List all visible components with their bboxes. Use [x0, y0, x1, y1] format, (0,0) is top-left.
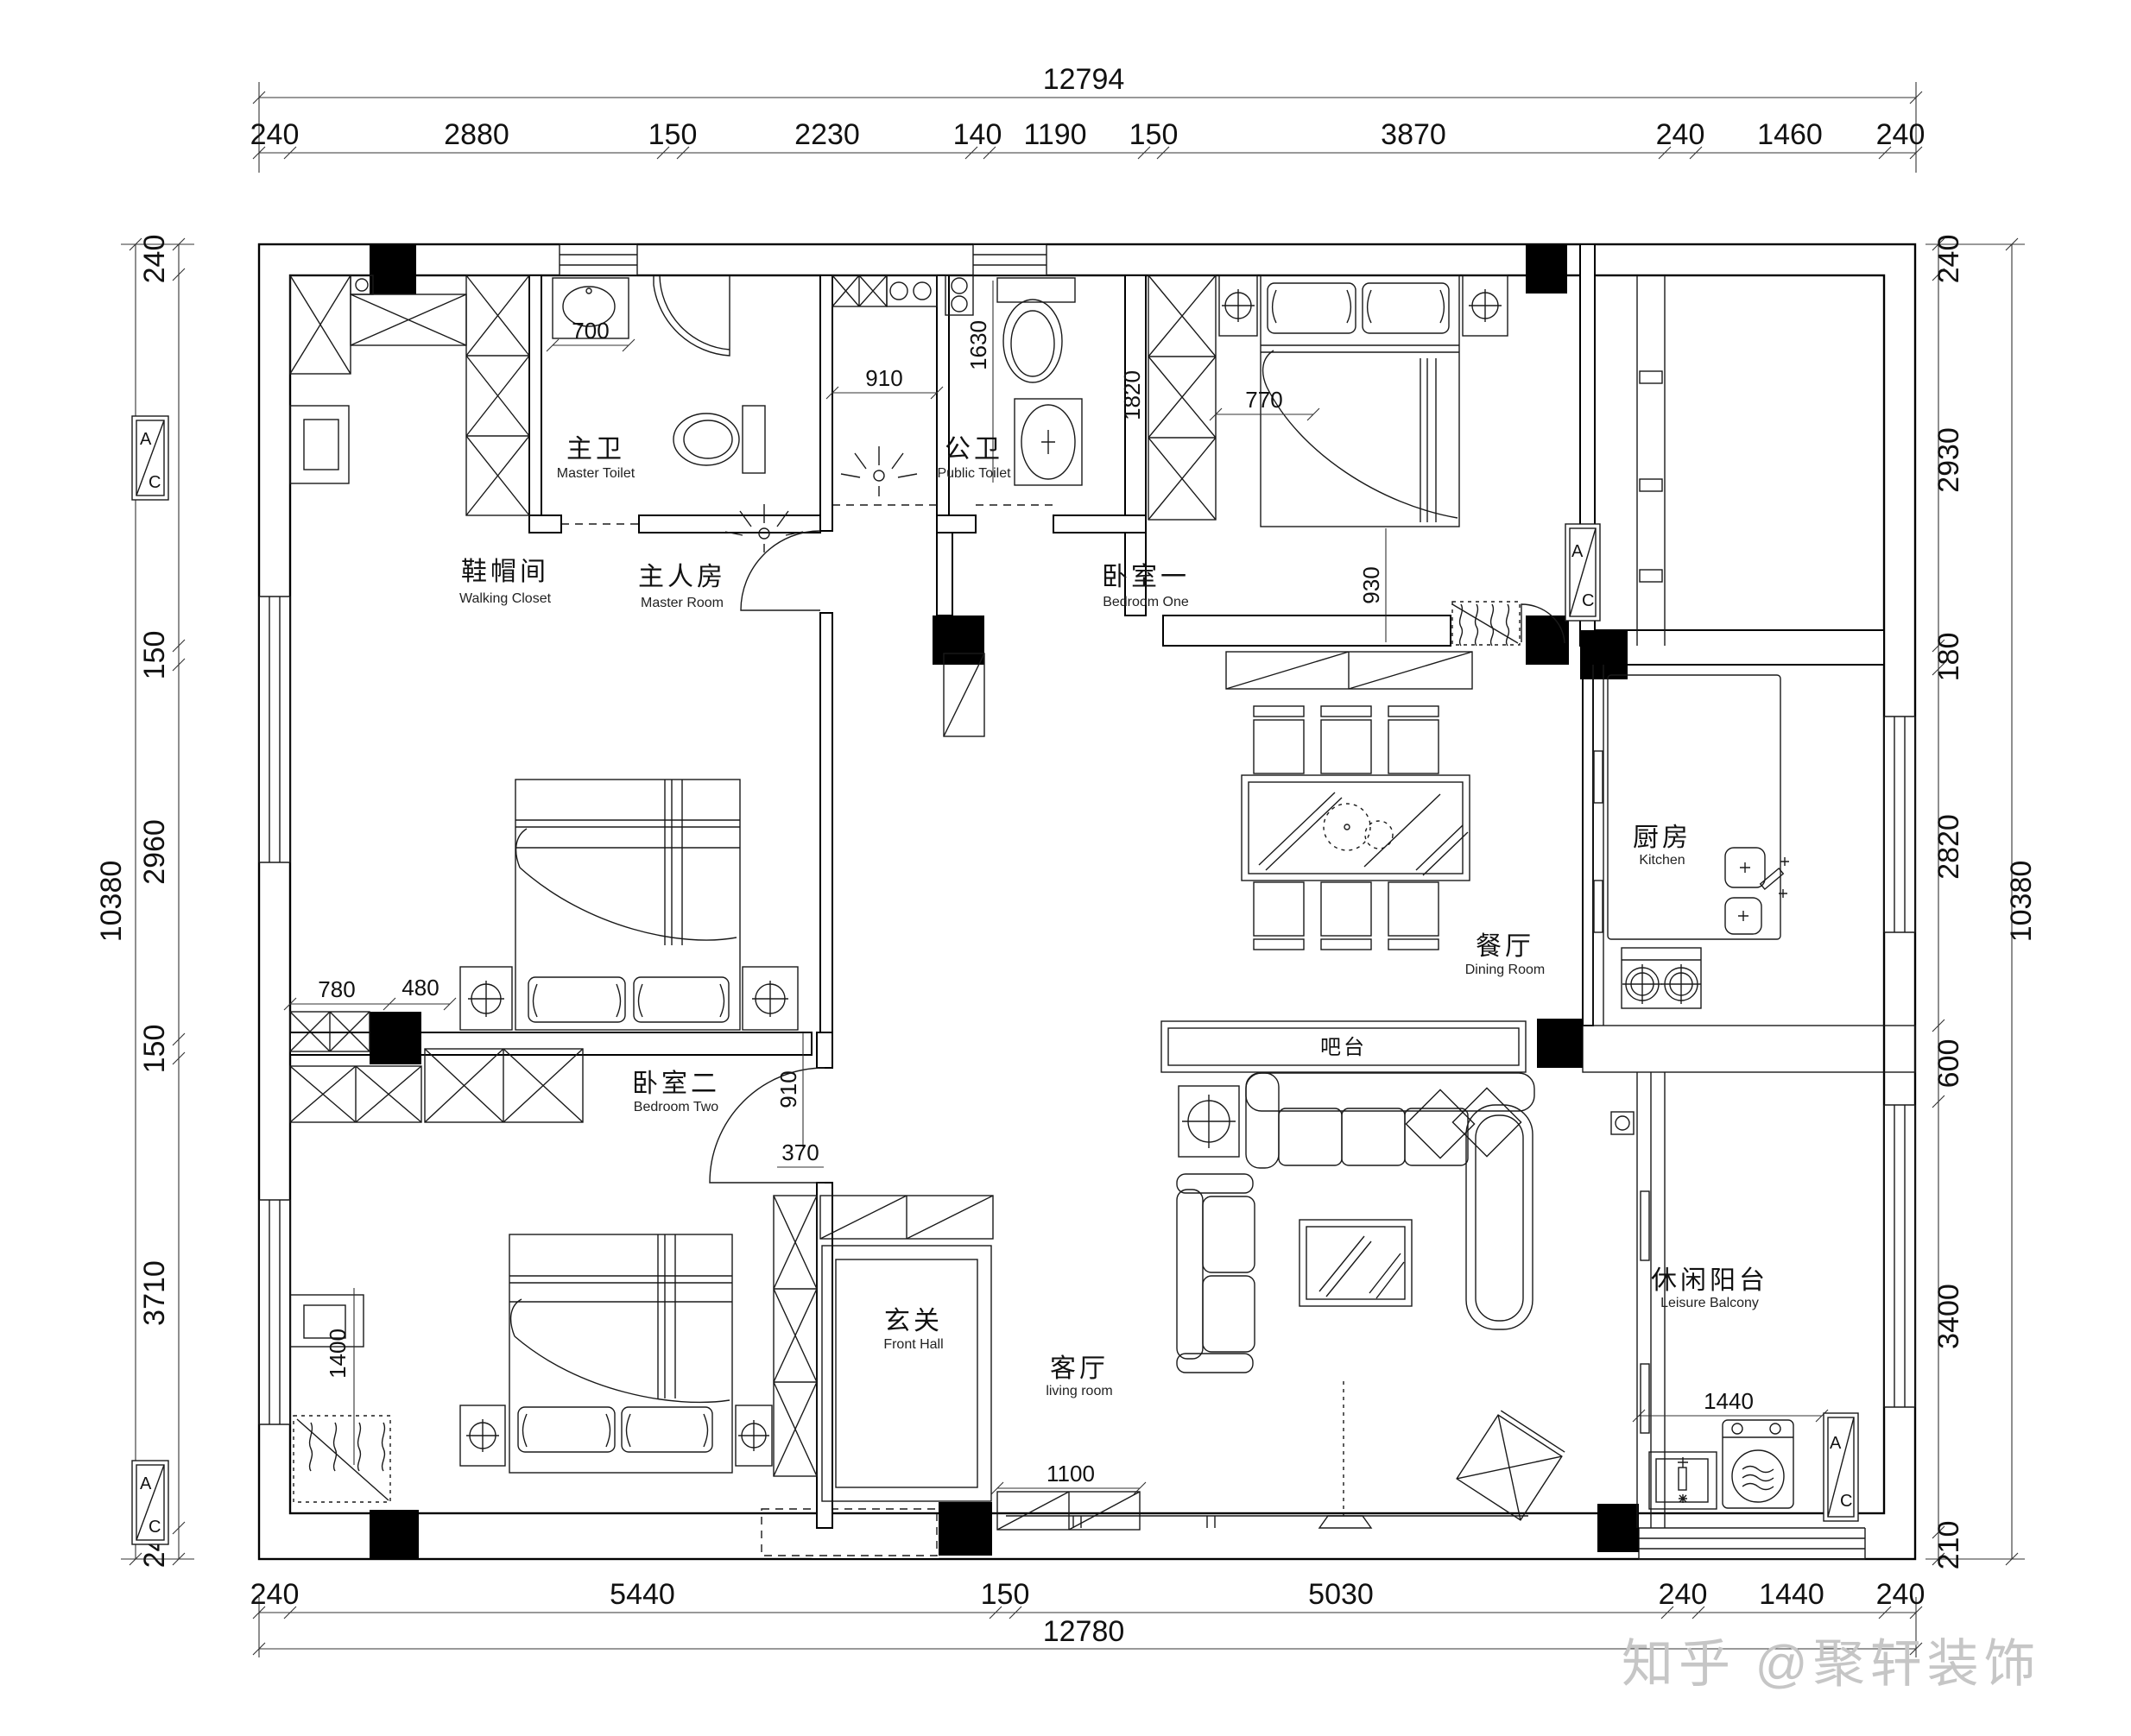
column — [370, 1012, 421, 1064]
bed-icon — [515, 780, 740, 1030]
room-label-public-toilet-en: Public Toilet — [937, 466, 1011, 481]
dim-left-seg-4: 150 — [138, 1025, 171, 1074]
nightstand-icon — [460, 1405, 505, 1466]
dim-left-seg-3: 2960 — [138, 819, 171, 885]
ac-label-a: A — [140, 1474, 152, 1493]
room-label-master-toilet: 主卫 — [566, 435, 625, 464]
decor-tilted-square-icon — [1457, 1411, 1565, 1520]
dim-bedroom-two-side: 1400 — [325, 1288, 354, 1465]
hall-cabinet-icon — [944, 653, 984, 736]
dim-top-seg-2: 150 — [648, 118, 698, 151]
bar-label: 吧台 — [1320, 1036, 1367, 1059]
svg-text:1400: 1400 — [325, 1329, 351, 1379]
dim-bedroom-one-gap: 770 — [1210, 387, 1319, 420]
dim-bedroom-one-wardrobe: 1820 — [1119, 370, 1145, 420]
room-front-hall: 910 370 玄关 Front Hall — [710, 1032, 993, 1501]
room-label-living-en: living room — [1046, 1384, 1112, 1398]
pedestal-sink-icon — [1015, 399, 1082, 485]
dim-right-seg-5: 3400 — [1932, 1284, 1965, 1349]
svg-text:770: 770 — [1245, 387, 1282, 413]
lamp-icon — [841, 446, 917, 496]
ac-unit-left-top: A C — [132, 416, 168, 500]
dresser-icon — [290, 406, 349, 483]
hanging-clothes-icon — [294, 1416, 390, 1502]
wall-kitchen-south — [1583, 1026, 1915, 1072]
room-living: 客厅 living room 1100 — [991, 1073, 1565, 1530]
room-label-kitchen: 厨房 — [1633, 824, 1692, 852]
ac-label-c: C — [1582, 591, 1594, 610]
room-label-master-en: Master Room — [641, 596, 724, 610]
dim-balcony: 1440 — [1633, 1388, 1828, 1422]
dim-bottom-seg-1: 5440 — [610, 1578, 675, 1611]
washing-machine-icon — [1723, 1420, 1793, 1508]
dim-left-total: 10380 — [95, 861, 128, 943]
dim-right-seg-3: 2820 — [1932, 814, 1965, 880]
column — [939, 1502, 992, 1556]
wall-master-corridor — [820, 613, 832, 1032]
room-label-living: 客厅 — [1050, 1354, 1109, 1383]
wardrobe-strip-b — [290, 1066, 421, 1122]
dim-top-total: 12794 — [1043, 63, 1125, 96]
svg-text:1100: 1100 — [1047, 1461, 1095, 1487]
dim-vanity: 700 — [547, 318, 635, 351]
room-label-front-hall-en: Front Hall — [883, 1337, 943, 1352]
utility-shaft: 910 — [826, 275, 943, 505]
dim-top-seg-0: 240 — [250, 118, 300, 151]
loveseat-icon — [1177, 1174, 1255, 1373]
wall-bedroom-two-east-a — [817, 1032, 832, 1068]
column — [1526, 244, 1567, 294]
svg-text:910: 910 — [775, 1070, 801, 1108]
nightstand-icon — [1219, 275, 1257, 336]
shoe-cabinet-icon — [997, 1492, 1140, 1530]
stove-icon — [1622, 948, 1701, 1008]
dim-top-seg-4: 140 — [953, 118, 1002, 151]
toilet-icon — [673, 406, 765, 473]
dim-bottom-seg-4: 240 — [1659, 1578, 1708, 1611]
svg-text:1630: 1630 — [965, 320, 991, 370]
room-label-master-toilet-en: Master Toilet — [557, 466, 636, 481]
window-top-master-toilet — [560, 244, 637, 275]
kitchen-sliding-door — [1593, 665, 1603, 1026]
svg-text:1440: 1440 — [1704, 1388, 1754, 1414]
dim-chain-top: 12794 240 2880 150 2230 140 1190 150 387… — [250, 63, 1925, 173]
wall-master-toilet-south-b — [639, 515, 820, 533]
sideboard-icon — [1226, 652, 1472, 689]
ac-label-c: C — [149, 1518, 161, 1537]
column — [1537, 1019, 1583, 1068]
dim-top-seg-1: 2880 — [444, 118, 509, 151]
column — [933, 615, 984, 665]
room-walking-closet: 鞋帽间 Walking Closet — [290, 275, 552, 606]
ac-unit-balcony: A C — [1824, 1413, 1858, 1521]
wall-public-toilet-south-b — [1053, 515, 1146, 533]
nightstand-icon — [743, 967, 798, 1030]
room-balcony: 1440 休闲阳台 Leisure Balcony — [1633, 1072, 1828, 1528]
dim-bottom-seg-0: 240 — [250, 1578, 300, 1611]
ac-unit-bedroom-one: A C — [1565, 524, 1600, 621]
dim-entry-cabinet: 1100 — [991, 1461, 1146, 1494]
ac-label-c: C — [1840, 1492, 1852, 1511]
svg-text:780: 780 — [318, 976, 355, 1002]
ac-label-a: A — [1830, 1434, 1842, 1453]
dim-top-seg-6: 150 — [1129, 118, 1179, 151]
wall-shaft-public — [937, 275, 949, 518]
window-left-bedroom-two — [259, 1200, 290, 1424]
hall-cabinet-top-icon — [820, 1196, 993, 1239]
window-right-balcony — [1884, 1105, 1915, 1407]
ac-label-a: A — [1571, 542, 1584, 561]
wardrobe-icon — [1148, 275, 1216, 520]
dining-chairs — [1254, 706, 1439, 950]
svg-text:930: 930 — [1358, 566, 1384, 603]
dim-top-seg-8: 240 — [1656, 118, 1705, 151]
dim-top-seg-5: 1190 — [1023, 118, 1086, 151]
wall-master-toilet-south-a — [529, 515, 561, 533]
room-label-balcony-en: Leisure Balcony — [1660, 1296, 1759, 1310]
nightstand-icon — [460, 967, 512, 1030]
ac-unit-left-bottom: A C — [132, 1461, 168, 1544]
room-label-bedroom-one: 卧室一 — [1102, 563, 1190, 591]
dim-bottom-seg-6: 240 — [1876, 1578, 1925, 1611]
wall-public-toilet-south-a — [937, 515, 976, 533]
counter-icon — [832, 275, 937, 306]
window-top-public-toilet — [973, 244, 1047, 275]
entry-rug-icon — [822, 1246, 991, 1501]
wall-master-shaft-upper — [820, 275, 832, 531]
structural-columns — [370, 244, 1639, 1559]
room-label-walking-closet-en: Walking Closet — [459, 591, 552, 606]
tv-icon — [1006, 1381, 1528, 1528]
svg-text:370: 370 — [781, 1139, 819, 1165]
floor-drain-circle — [1616, 1116, 1629, 1130]
dim-bedroom-two-a: 780 480 — [284, 975, 456, 1010]
interior-walls — [290, 244, 1915, 1528]
room-dining: 餐厅 Dining Room — [944, 652, 1545, 977]
dim-top-seg-9: 1460 — [1757, 118, 1823, 151]
wall-corridor-stub — [937, 533, 952, 615]
nightstand-icon — [736, 1405, 772, 1466]
ac-label-a: A — [140, 430, 152, 449]
room-label-balcony: 休闲阳台 — [1651, 1266, 1768, 1295]
sofa-icon — [1246, 1073, 1534, 1329]
window-right-kitchen — [1884, 716, 1915, 932]
floor-drain-icon — [1611, 1112, 1634, 1134]
wardrobe-strip-c — [425, 1049, 583, 1122]
room-label-public-toilet: 公卫 — [945, 435, 1003, 464]
door-swing-bedroom-two — [710, 1068, 825, 1183]
dim-right-seg-6: 210 — [1932, 1521, 1965, 1570]
wardrobe-icon — [290, 275, 529, 515]
column — [370, 244, 416, 294]
room-label-bedroom-two: 卧室二 — [632, 1070, 720, 1098]
dim-left-seg-2: 150 — [138, 631, 171, 680]
dining-table-icon — [1242, 775, 1470, 881]
room-label-dining-en: Dining Room — [1465, 963, 1545, 977]
nightstand-icon — [1463, 275, 1508, 336]
room-kitchen: 厨房 Kitchen — [1593, 665, 1789, 1134]
floor-plan-svg: 12794 240 2880 150 2230 140 1190 150 387… — [0, 0, 2131, 1736]
svg-text:1820: 1820 — [1119, 370, 1145, 420]
dim-right-seg-2: 180 — [1932, 633, 1965, 682]
room-public-toilet: 1630 公卫 Public Toilet — [937, 275, 1082, 505]
column — [370, 1510, 419, 1559]
room-label-bedroom-two-en: Bedroom Two — [634, 1100, 719, 1114]
room-master-toilet: 700 主卫 Master Toilet — [547, 275, 803, 552]
bar-counter: 吧台 — [1161, 1021, 1526, 1072]
bed-icon — [509, 1234, 732, 1473]
dim-right-seg-4: 600 — [1932, 1039, 1965, 1089]
room-bedroom-one: 1820 770 930 卧室一 Bedroom One — [1102, 275, 1565, 646]
side-table-icon — [1179, 1086, 1239, 1157]
wall-closet-toilet — [529, 275, 541, 533]
dim-top-seg-10: 240 — [1876, 118, 1925, 151]
svg-text:480: 480 — [402, 975, 439, 1001]
entry-door-opening — [762, 1509, 939, 1558]
kitchen-sink-icon — [1725, 848, 1789, 934]
bed-icon — [1261, 275, 1459, 527]
column — [1526, 615, 1569, 665]
dim-top-seg-3: 2230 — [794, 118, 860, 151]
room-label-kitchen-en: Kitchen — [1639, 853, 1685, 868]
svg-text:700: 700 — [572, 318, 609, 344]
window-left-master — [259, 597, 290, 862]
dim-left-seg-0: 240 — [138, 235, 171, 284]
svg-text:910: 910 — [865, 365, 902, 391]
dim-bottom-seg-3: 5030 — [1308, 1578, 1374, 1611]
dim-right-seg-0: 240 — [1932, 235, 1965, 284]
shower-icon — [654, 275, 730, 356]
column — [1597, 1504, 1639, 1552]
dim-bottom-seg-5: 1440 — [1759, 1578, 1824, 1611]
floor-plan-canvas: 12794 240 2880 150 2230 140 1190 150 387… — [0, 0, 2131, 1736]
toilet-icon — [997, 278, 1075, 382]
tall-cabinet-icon — [774, 1196, 817, 1476]
door-swing-master — [741, 531, 820, 610]
dim-bottom-total: 12780 — [1043, 1615, 1125, 1648]
hanging-clothes-icon — [1452, 602, 1520, 646]
room-label-bedroom-one-en: Bedroom One — [1103, 595, 1189, 609]
room-label-master: 主人房 — [638, 563, 726, 591]
dim-shaft: 910 — [826, 365, 943, 399]
dim-right-total: 10380 — [2005, 861, 2038, 943]
wall-kitchen-west — [1583, 665, 1593, 1026]
window-bottom-balcony — [1639, 1528, 1865, 1559]
watermark: 知乎 @聚轩装饰 — [1622, 1635, 2041, 1693]
balcony-sink-icon — [1649, 1452, 1717, 1509]
dim-front-hall-offset: 370 — [777, 1139, 824, 1167]
ac-label-c: C — [149, 473, 161, 492]
dim-top-seg-7: 3870 — [1381, 118, 1446, 151]
room-label-walking-closet: 鞋帽间 — [461, 558, 549, 586]
room-label-front-hall: 玄关 — [884, 1307, 943, 1335]
window-strip-courtyard — [1637, 275, 1665, 646]
dim-left-seg-5: 3710 — [138, 1260, 171, 1326]
dim-bottom-seg-2: 150 — [981, 1578, 1030, 1611]
wall-kitchen-north — [1595, 630, 1884, 665]
wall-bedroom-one-south — [1163, 615, 1451, 646]
coffee-table-icon — [1299, 1220, 1412, 1306]
room-label-dining: 餐厅 — [1476, 932, 1534, 961]
dim-right-seg-1: 2930 — [1932, 427, 1965, 493]
dim-chain-right: 10380 240 2930 180 2820 600 3400 210 — [1925, 235, 2038, 1570]
